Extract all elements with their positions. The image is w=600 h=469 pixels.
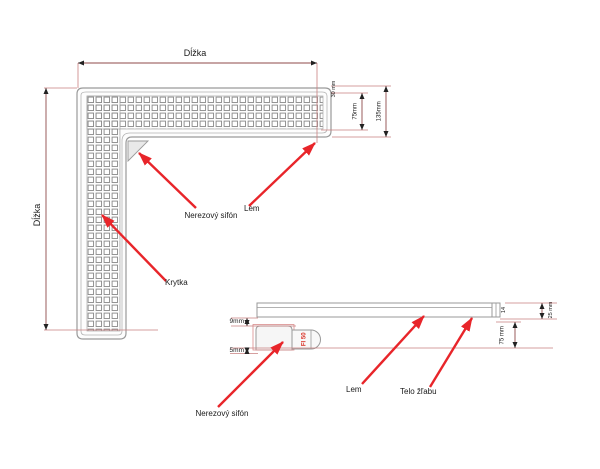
grate-grid-vertical bbox=[87, 96, 120, 331]
callout-label-rim-side: Lem bbox=[346, 386, 362, 395]
technical-drawing-canvas: Dĺžka Dĺžka 30 mm 75mm 135mm Nerezový si… bbox=[0, 0, 600, 469]
channel-body bbox=[257, 303, 492, 317]
drawing-linework bbox=[0, 0, 600, 469]
dim-label-75mm-side: 75 mm bbox=[500, 320, 507, 350]
dim-label-30mm: 30 mm bbox=[331, 74, 337, 104]
callout-label-channel-body: Telo žľabu bbox=[400, 388, 437, 397]
grate-grid-horizontal bbox=[87, 96, 323, 129]
dim-label-75mm-top: 75mm bbox=[353, 96, 360, 126]
callout-label-cover: Krytka bbox=[165, 279, 188, 288]
dim-label-135mm: 135mm bbox=[377, 93, 384, 129]
arrow-to-rim-top-view bbox=[249, 143, 315, 206]
dim-label-length-left: Dĺžka bbox=[33, 175, 43, 255]
dim-label-14: 14 bbox=[501, 300, 507, 320]
siphon-box bbox=[256, 326, 292, 350]
dim-label-5mm: 5mm bbox=[220, 347, 244, 354]
callout-arrows bbox=[102, 143, 472, 407]
dim-label-25mm: 25 mm bbox=[548, 295, 554, 325]
arrow-to-corner-siphon bbox=[139, 153, 196, 208]
pipe-diameter-label: FI 50 bbox=[302, 327, 309, 351]
callout-label-siphon-side: Nerezový sifón bbox=[177, 410, 267, 419]
dim-label-length-top: Dĺžka bbox=[155, 49, 235, 59]
dim-label-9mm: 9mm bbox=[220, 318, 244, 325]
arrow-to-channel-body bbox=[430, 318, 472, 387]
side-view-channel bbox=[253, 303, 500, 350]
callout-label-rim-top: Lem bbox=[244, 205, 260, 214]
callout-label-siphon-top: Nerezový sifón bbox=[166, 212, 256, 221]
arrow-to-rim-side-view bbox=[362, 316, 424, 384]
